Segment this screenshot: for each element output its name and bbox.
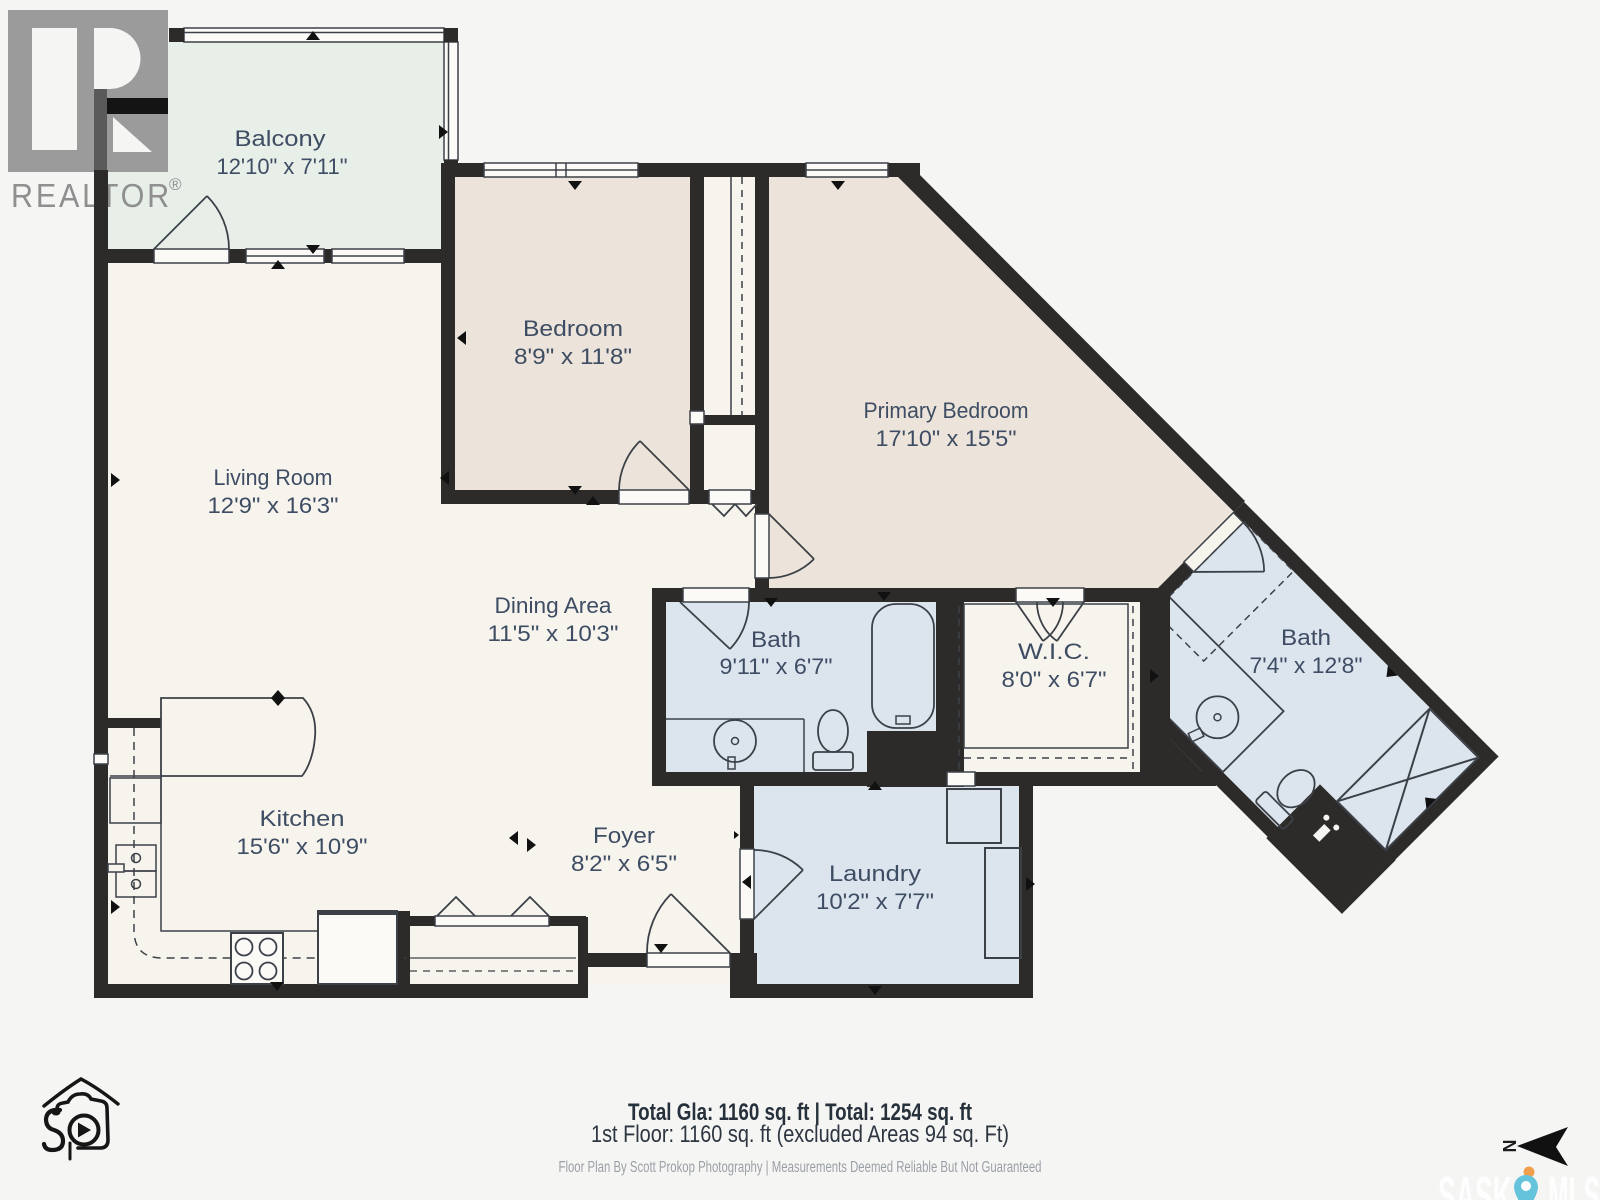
svg-text:11'5" x 10'3": 11'5" x 10'3": [488, 621, 619, 646]
svg-text:Balcony: Balcony: [235, 126, 326, 151]
svg-text:7'4" x 12'8": 7'4" x 12'8": [1250, 653, 1363, 678]
svg-text:Bath: Bath: [1281, 625, 1331, 650]
svg-text:12'10" x 7'11": 12'10" x 7'11": [217, 154, 348, 179]
svg-text:Kitchen: Kitchen: [260, 806, 345, 831]
svg-text:SASK: SASK: [1438, 1166, 1512, 1200]
svg-text:Primary Bedroom: Primary Bedroom: [864, 398, 1029, 423]
svg-text:Floor Plan By Scott Prokop Pho: Floor Plan By Scott Prokop Photography |…: [559, 1159, 1042, 1176]
svg-text:8'0" x 6'7": 8'0" x 6'7": [1002, 667, 1107, 692]
svg-text:Laundry: Laundry: [829, 861, 921, 886]
svg-text:17'10" x 15'5": 17'10" x 15'5": [876, 426, 1017, 451]
svg-text:Foyer: Foyer: [593, 823, 655, 848]
svg-text:W.I.C.: W.I.C.: [1018, 639, 1090, 664]
svg-text:15'6" x 10'9": 15'6" x 10'9": [237, 834, 368, 859]
svg-text:MLS: MLS: [1548, 1166, 1600, 1200]
svg-text:Living Room: Living Room: [214, 465, 333, 490]
svg-text:12'9" x 16'3": 12'9" x 16'3": [208, 493, 339, 518]
svg-text:REALTOR: REALTOR: [11, 177, 172, 214]
svg-text:Dining Area: Dining Area: [495, 593, 613, 618]
svg-text:8'9" x 11'8": 8'9" x 11'8": [514, 344, 632, 369]
svg-text:1st Floor: 1160 sq. ft (exclud: 1st Floor: 1160 sq. ft (excluded Areas 9…: [591, 1121, 1009, 1148]
svg-text:Bedroom: Bedroom: [523, 316, 623, 341]
svg-text:N: N: [1499, 1140, 1519, 1153]
svg-text:9'11" x 6'7": 9'11" x 6'7": [720, 654, 833, 679]
svg-text:Bath: Bath: [751, 627, 801, 652]
svg-text:10'2" x 7'7": 10'2" x 7'7": [816, 889, 934, 914]
svg-text:8'2" x 6'5": 8'2" x 6'5": [571, 851, 677, 876]
svg-text:®: ®: [169, 175, 182, 194]
